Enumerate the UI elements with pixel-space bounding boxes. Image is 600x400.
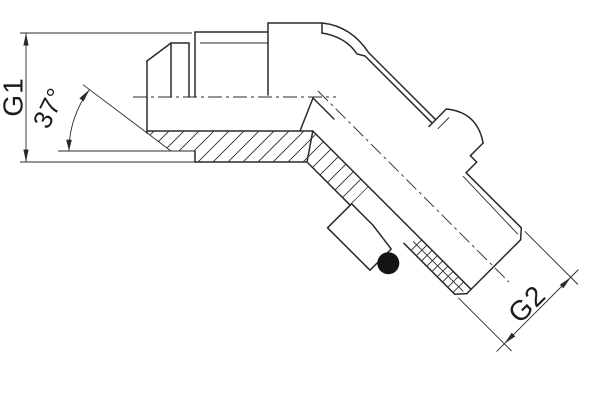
g2-label: G2	[502, 279, 552, 329]
angle-arc	[69, 90, 90, 151]
thread-root-stud-lower	[413, 241, 463, 291]
thread-root-stud-upper	[463, 176, 518, 234]
elbow-fitting-drawing: G1 37° G2	[0, 0, 600, 400]
nut-right-face	[470, 143, 483, 156]
angle-label: 37°	[27, 83, 72, 133]
g2-extension-upper	[525, 231, 578, 284]
washer-outer-edge	[470, 156, 476, 162]
o-ring	[377, 252, 399, 274]
g1-label: G1	[0, 77, 29, 116]
hatch-horizontal-band	[147, 131, 313, 162]
stud-chamfer-upper	[521, 228, 522, 240]
washer-right-face	[466, 162, 477, 173]
stud-end-face	[467, 240, 521, 294]
flare-cone-top	[147, 43, 171, 61]
g2-dimension: G2	[458, 231, 578, 351]
g1-arrow-down	[23, 150, 28, 163]
stud-chamfer-lower	[455, 294, 467, 295]
centerlines	[133, 91, 509, 282]
hex-nut-washer	[429, 109, 483, 173]
corner-fillet-inner	[322, 33, 432, 123]
technical-drawing-canvas: G1 37° G2	[0, 0, 600, 400]
nut-chamfer-line	[438, 118, 449, 129]
g1-arrow-up	[23, 33, 28, 46]
hatch-diagonal-band	[307, 131, 369, 205]
nut-left-face	[429, 109, 446, 127]
nut-corner-arc	[446, 109, 483, 143]
angle-arrow-top	[79, 90, 89, 102]
flare-cone-extension-line	[83, 85, 171, 151]
angle-arrow-bottom	[66, 140, 72, 151]
bore-miter-left	[300, 98, 334, 131]
stud-upper-edge	[466, 173, 521, 228]
